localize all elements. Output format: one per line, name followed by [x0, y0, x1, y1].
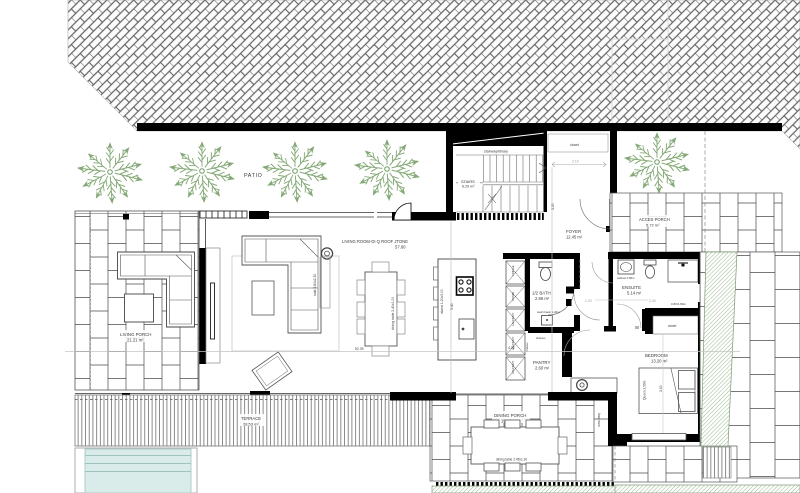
svg-text:SINK BBQ: SINK BBQ	[597, 412, 601, 427]
svg-text:dining table 2.45x1.20: dining table 2.45x1.20	[496, 458, 527, 462]
svg-text:5.14 m²: 5.14 m²	[627, 291, 642, 296]
svg-text:12.45 m²: 12.45 m²	[566, 235, 583, 240]
svg-text:6.29 m²: 6.29 m²	[462, 184, 475, 188]
svg-text:3.30: 3.30	[551, 203, 555, 210]
svg-text:BEDROOM: BEDROOM	[645, 353, 668, 358]
svg-text:3.50: 3.50	[659, 385, 663, 392]
svg-text:Queen 1.50m: Queen 1.50m	[643, 380, 647, 400]
svg-text:TERRACE: TERRACE	[241, 416, 261, 421]
svg-text:57.60: 57.60	[395, 245, 406, 250]
svg-text:closet: closet	[668, 324, 676, 328]
svg-text:2.40: 2.40	[649, 299, 656, 303]
svg-text:LIVING ROOM-DI Q ROOF JTON: LIVING ROOM-DI Q ROOF JTONE	[342, 239, 408, 244]
svg-text:13.20 m²: 13.20 m²	[651, 359, 668, 364]
svg-text:21.21 m²: 21.21 m²	[127, 338, 144, 343]
svg-text:1/2 BATH: 1/2 BATH	[532, 291, 551, 296]
svg-text:wash basin 1.20m: wash basin 1.20m	[537, 310, 560, 314]
svg-text:DINING PORCH: DINING PORCH	[494, 413, 526, 418]
svg-text:1.20: 1.20	[585, 299, 592, 303]
svg-text:closet: closet	[570, 143, 579, 147]
svg-text:28.53 m²: 28.53 m²	[243, 422, 259, 427]
svg-text:2.10: 2.10	[572, 160, 579, 164]
svg-text:shelves: shelves	[536, 336, 546, 340]
svg-text:COMBI: COMBI	[511, 292, 515, 301]
svg-text:0.80/1.80m: 0.80/1.80m	[671, 302, 687, 306]
svg-text:4.12: 4.12	[508, 346, 515, 350]
svg-text:FRIDGE: FRIDGE	[511, 265, 515, 276]
svg-text:ENSUITE: ENSUITE	[622, 285, 641, 290]
svg-text:ACCES PORCH: ACCES PORCH	[639, 217, 670, 222]
svg-text:LIVING PORCH: LIVING PORCH	[120, 332, 151, 337]
svg-text:cabinet 0.80m: cabinet 0.80m	[617, 276, 635, 280]
svg-text:5.72 m²: 5.72 m²	[646, 223, 660, 228]
svg-text:PANTRY: PANTRY	[533, 360, 550, 365]
svg-text:stairway/library: stairway/library	[484, 150, 508, 154]
svg-text:FOYER: FOYER	[566, 229, 581, 234]
svg-text:LAUNDRY: LAUNDRY	[511, 361, 515, 374]
svg-text:island 1.20x3.00: island 1.20x3.00	[440, 289, 444, 314]
svg-text:STAIRS: STAIRS	[461, 179, 475, 184]
svg-text:52.39: 52.39	[355, 347, 364, 351]
svg-text:PATIO: PATIO	[244, 173, 262, 179]
svg-text:2.86 m²: 2.86 m²	[535, 296, 550, 301]
svg-text:dining table 2.40x1.00: dining table 2.40x1.00	[391, 297, 395, 330]
svg-text:shelves: shelves	[525, 342, 529, 352]
svg-text:2.60 m²: 2.60 m²	[535, 366, 550, 371]
svg-text:5.40: 5.40	[450, 303, 454, 310]
svg-text:sofa 3.80x2.30: sofa 3.80x2.30	[313, 274, 317, 296]
svg-text:LAUNDRY: LAUNDRY	[511, 313, 515, 326]
